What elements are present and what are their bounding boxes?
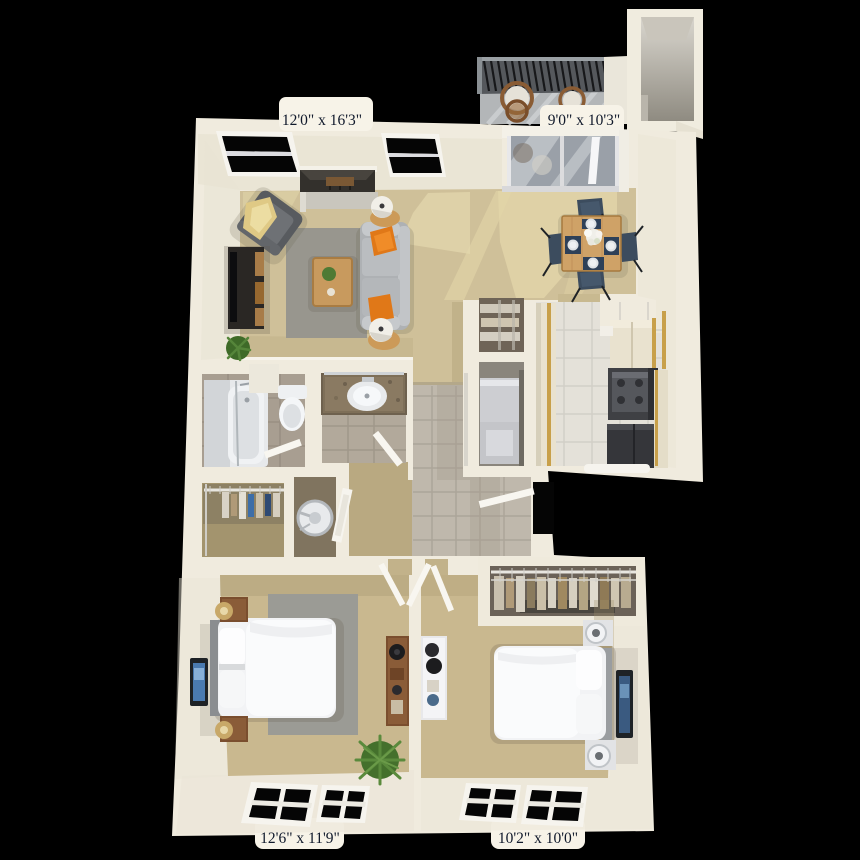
svg-text:9'0" x 10'3": 9'0" x 10'3" (548, 112, 621, 129)
svg-text:10'2" x 10'0": 10'2" x 10'0" (498, 830, 578, 847)
svg-text:12'6" x 11'9": 12'6" x 11'9" (260, 830, 340, 847)
svg-text:12'0" x 16'3": 12'0" x 16'3" (282, 112, 362, 129)
